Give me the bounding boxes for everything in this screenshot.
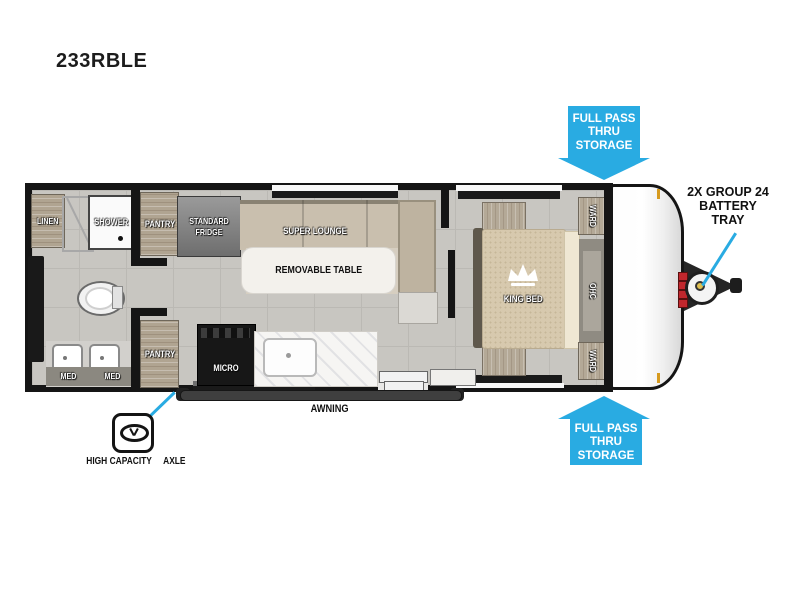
sofa-label: SUPER LOUNGE (283, 227, 347, 237)
battery-tray-callout: 2X GROUP 24 BATTERY TRAY (666, 185, 790, 227)
toilet-seat (85, 287, 115, 310)
sofa-label-wrap: SUPER LOUNGE (255, 226, 375, 238)
battery-callout-line2: BATTERY (666, 199, 790, 213)
bathroom-wall-stub-upper (131, 258, 167, 266)
med-cabinet-left-label: MED (60, 372, 76, 381)
shower: SHOWER (88, 195, 134, 250)
pantry-upper: PANTRY (140, 192, 179, 256)
axle-callout: HIGH CAPACITY AXLE (78, 456, 190, 468)
overhead-cabinet: OHC (579, 239, 605, 343)
battery-callout-line3: TRAY (666, 213, 790, 227)
axle-callout-line1: HIGH CAPACITY (86, 456, 152, 468)
king-bed-label-wrap: KING BED (492, 294, 554, 306)
wardrobe-upper: WARD (578, 197, 607, 235)
table-label: REMOVABLE TABLE (275, 265, 362, 276)
rear-wall-panel (28, 256, 44, 362)
refrigerator: STANDARD FRIDGE (177, 196, 241, 257)
storage-callout-top-line1: FULL PASS (568, 113, 640, 126)
wardrobe-lower: WARD (578, 342, 607, 380)
microwave-label: MICRO (213, 364, 238, 373)
bedside-bench-bottom (482, 345, 526, 376)
storage-callout-bottom-line2: THRU (570, 436, 642, 449)
linen-label: LINEN (37, 217, 58, 226)
shower-label: SHOWER (94, 218, 128, 227)
kitchen-sink-drain (286, 353, 291, 358)
bathroom-wall-lower (131, 314, 140, 388)
arrow-down-icon (558, 158, 650, 180)
sink-drain-left (63, 356, 67, 360)
sofa-ottoman (398, 292, 438, 324)
bed-headboard (564, 231, 580, 349)
page-title: 233RBLE (56, 50, 147, 73)
pantry-lower-label: PANTRY (144, 350, 174, 359)
lounge-bedroom-wall-mid (448, 250, 455, 318)
king-bed (482, 229, 566, 349)
removable-table: REMOVABLE TABLE (241, 247, 396, 294)
wardrobe-upper-label: WARD (588, 205, 596, 227)
overhead-cabinet-label: OHC (588, 283, 596, 299)
linen-cabinet: LINEN (31, 194, 65, 248)
axle-callout-line2: AXLE (163, 456, 185, 468)
front-bulkhead-wall (604, 184, 613, 390)
awning-label-wrap: AWNING (290, 402, 370, 416)
storage-callout-bottom: FULL PASS THRU STORAGE (570, 419, 642, 465)
window-lounge-top-frame (272, 191, 398, 198)
microwave-label-wrap: MICRO (197, 360, 254, 376)
range-vent (201, 328, 250, 338)
hitch-coupler (730, 278, 742, 293)
floorplan-page: 233RBLE LINEN SHOWER MED MED PA (0, 0, 800, 600)
pantry-lower: PANTRY (140, 320, 179, 388)
storage-callout-top: FULL PASS THRU STORAGE (568, 106, 640, 159)
refrigerator-label: STANDARD FRIDGE (185, 216, 234, 237)
toilet-tank (112, 286, 123, 309)
storage-callout-bottom-line3: STORAGE (570, 450, 642, 463)
storage-callout-bottom-line1: FULL PASS (570, 423, 642, 436)
pantry-upper-label: PANTRY (144, 220, 174, 229)
wardrobe-lower-label: WARD (588, 350, 596, 372)
entry-landing (430, 369, 476, 386)
shower-drain (118, 236, 123, 241)
sink-drain-right (100, 356, 104, 360)
king-bed-label: KING BED (503, 295, 542, 305)
cap-marker-bottom (657, 373, 660, 383)
lounge-bedroom-wall-upper (441, 186, 449, 228)
window-bedroom-top-frame (458, 191, 560, 199)
awning-bar (180, 390, 462, 401)
bathroom-wall-upper (131, 188, 140, 264)
awning-label: AWNING (311, 404, 349, 415)
battery-cell (678, 299, 688, 308)
med-cabinet-right-label: MED (104, 372, 120, 381)
battery-callout-line1: 2X GROUP 24 (666, 185, 790, 199)
storage-callout-top-line2: THRU (568, 126, 640, 139)
cap-marker-top (657, 189, 660, 199)
storage-callout-top-line3: STORAGE (568, 140, 640, 153)
scale-icon (112, 413, 154, 453)
arrow-up-icon (558, 396, 650, 419)
medicine-cabinet-band: MED MED (46, 367, 134, 386)
crown-icon (505, 262, 541, 288)
